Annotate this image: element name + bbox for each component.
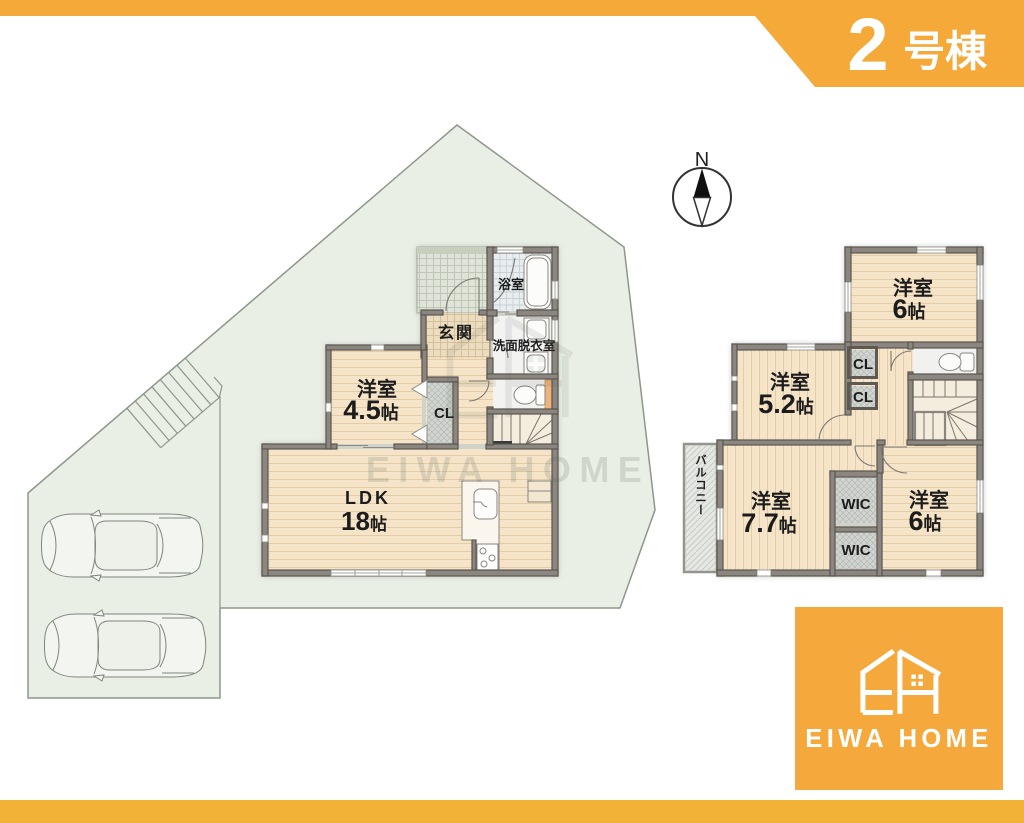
svg-text:CL: CL xyxy=(853,356,873,373)
svg-text:浴室: 浴室 xyxy=(498,277,524,292)
svg-text:バルコニー: バルコニー xyxy=(694,454,707,517)
svg-text:N: N xyxy=(695,149,709,171)
svg-text:LDK: LDK xyxy=(345,488,391,508)
svg-text:2: 2 xyxy=(847,3,888,86)
svg-text:EIWA HOME: EIWA HOME xyxy=(805,725,992,753)
svg-text:WIC: WIC xyxy=(841,496,870,513)
svg-text:CL: CL xyxy=(853,389,873,406)
svg-text:号棟: 号棟 xyxy=(903,28,988,75)
svg-text:EIWA HOME: EIWA HOME xyxy=(366,449,650,490)
svg-text:WIC: WIC xyxy=(841,542,870,559)
